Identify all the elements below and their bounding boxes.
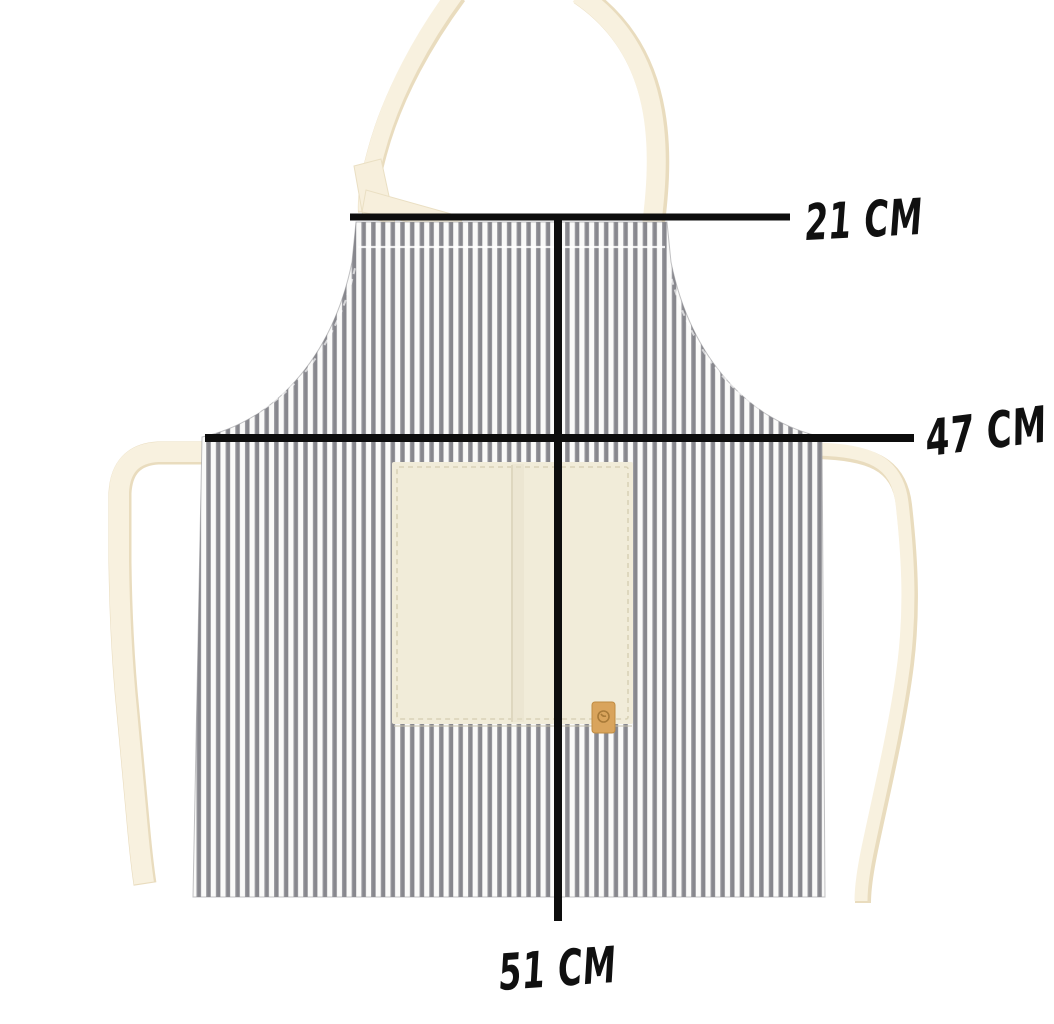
dimension-label-top-width: 21 CM [804, 188, 925, 252]
neck-strap-right [578, 0, 656, 237]
leather-tag-face [592, 702, 615, 733]
dimension-label-waist-width: 47 CM [922, 395, 1051, 468]
apron-dimension-diagram: 21 CM 47 CM 51 CM [0, 0, 1054, 1024]
apron-pocket [392, 462, 633, 733]
dimension-label-length: 51 CM [497, 936, 619, 1002]
waist-tie-right [818, 449, 908, 901]
leather-tag [592, 702, 615, 733]
pocket-crease-shade [512, 464, 524, 722]
product-dimension-image: 21 CM 47 CM 51 CM [0, 0, 1054, 1024]
